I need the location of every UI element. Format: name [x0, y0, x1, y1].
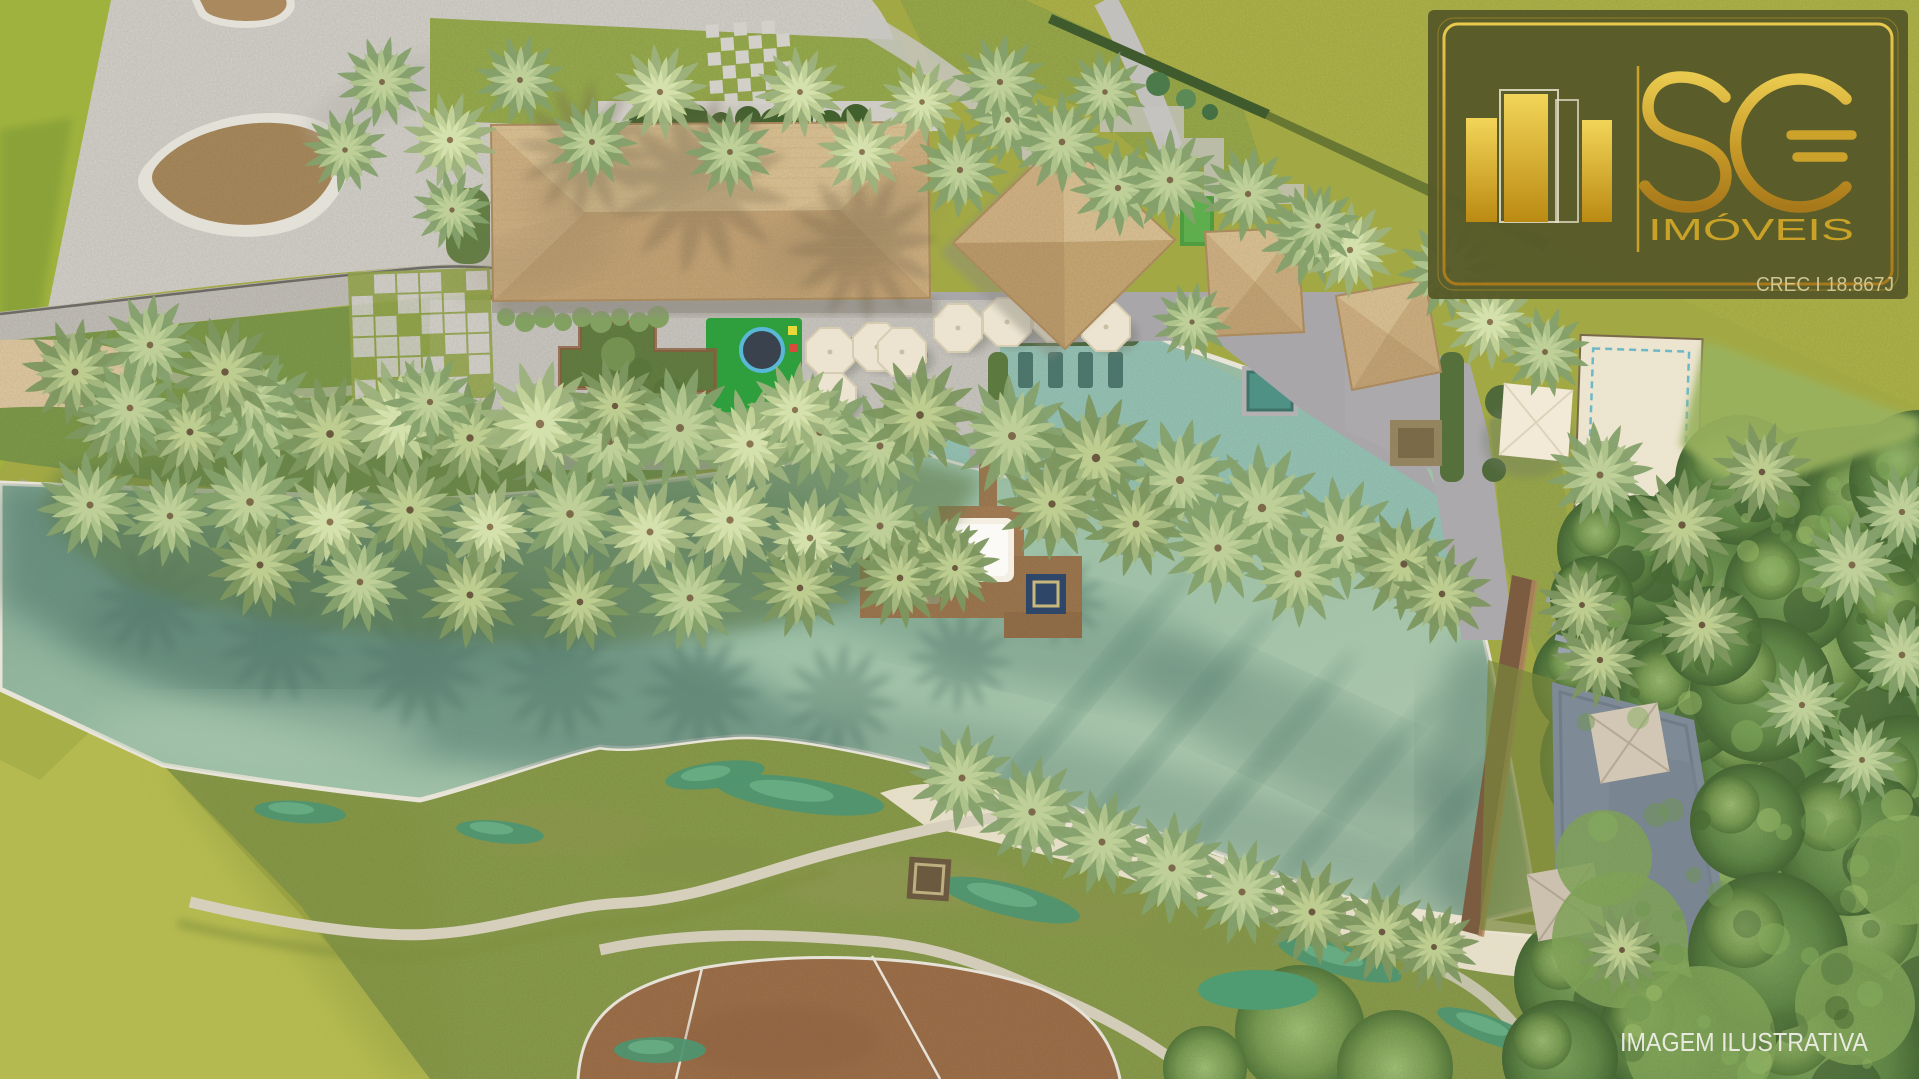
svg-text:CREC I 18.867J: CREC I 18.867J [1756, 274, 1894, 296]
svg-text:IMAGEM ILUSTRATIVA: IMAGEM ILUSTRATIVA [1620, 1027, 1869, 1057]
svg-text:IMÓVEIS: IMÓVEIS [1648, 212, 1854, 247]
